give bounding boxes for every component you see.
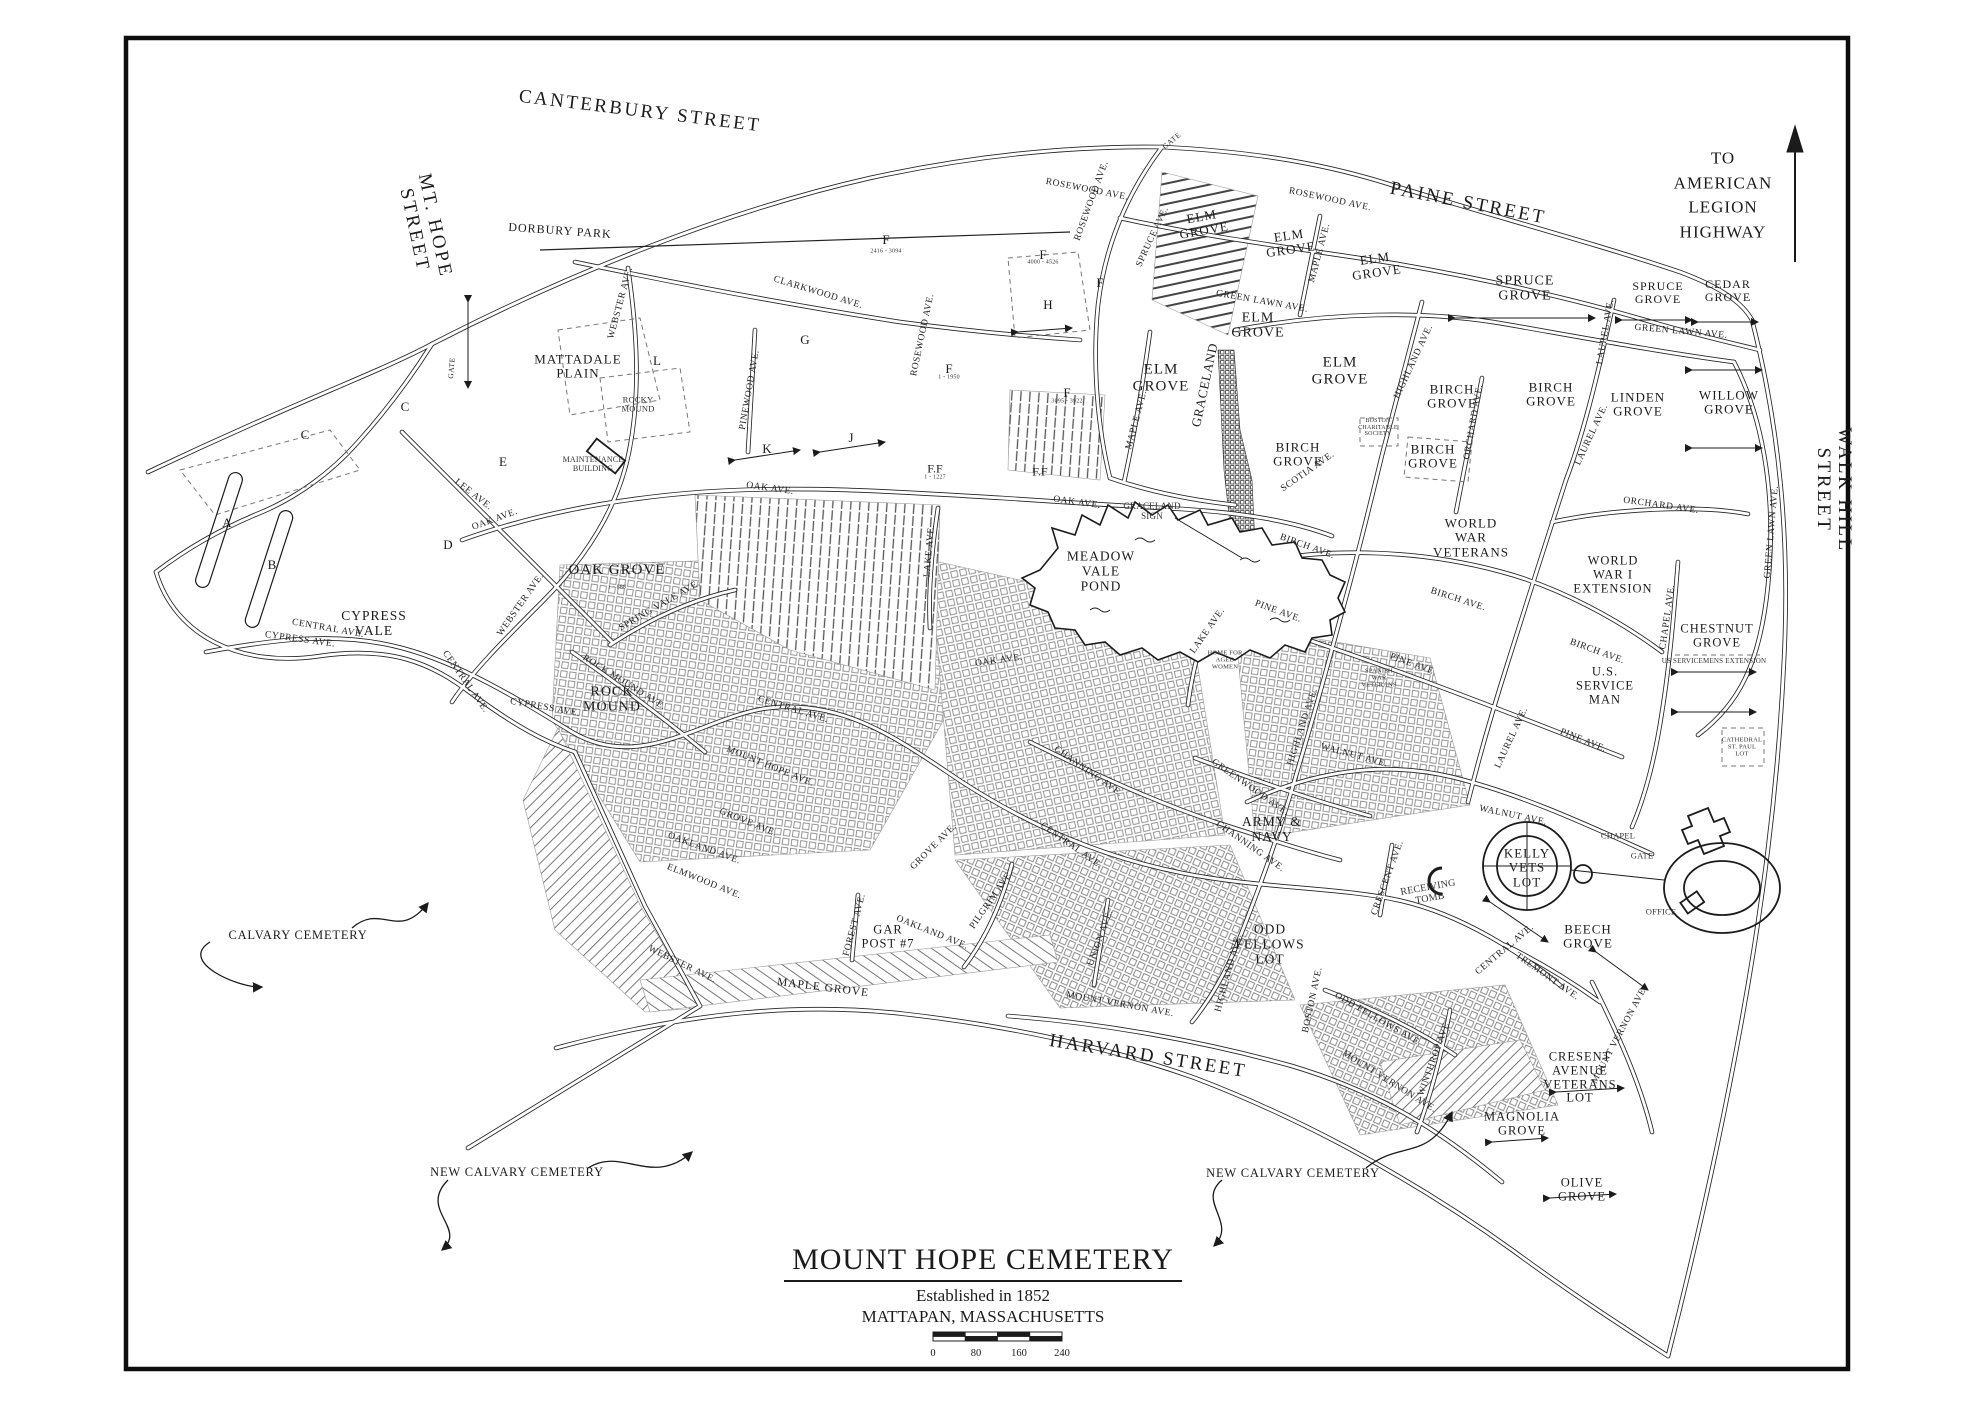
scale-tick-80: 80 [971, 1348, 982, 1359]
map-title: MOUNT HOPE CEMETERY [784, 1243, 1182, 1282]
scale-bar [933, 1332, 1062, 1341]
map-artwork [0, 0, 1972, 1408]
north-arrow [1787, 126, 1803, 262]
map-subtitle-location: MATTAPAN, MASSACHUSETTS [703, 1307, 1263, 1327]
map-subtitle-established: Established in 1852 [703, 1286, 1263, 1306]
scale-tick-0: 0 [930, 1348, 935, 1359]
mount-hope-cemetery-map: CANTERBURY STREETPAINE STREETMT. HOPE ST… [0, 0, 1972, 1408]
chapel-building-icon [1682, 808, 1730, 854]
title-block: MOUNT HOPE CEMETERY Established in 1852 … [703, 1243, 1263, 1327]
scale-tick-160: 160 [1011, 1348, 1027, 1359]
receiving-tomb-icon [1429, 868, 1442, 894]
maintenance-building-icon [587, 439, 625, 474]
scale-tick-240: 240 [1054, 1348, 1070, 1359]
